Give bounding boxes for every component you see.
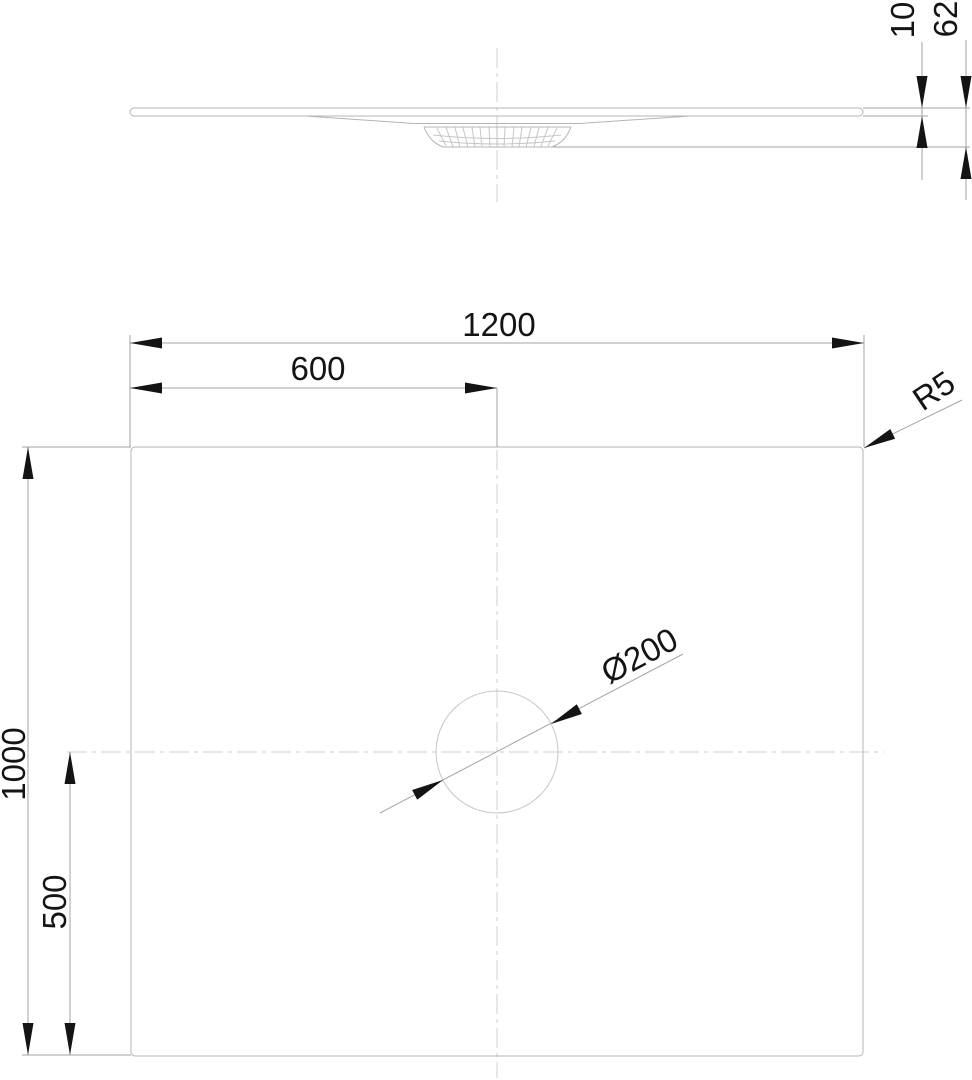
arrowhead	[65, 752, 76, 784]
arrowhead	[832, 338, 864, 349]
dim-width-label: 1200	[462, 306, 535, 343]
corner-radius-label: R5	[906, 363, 962, 417]
arrowhead	[23, 447, 34, 479]
arrowhead	[917, 116, 928, 148]
drain-diameter-callout: Ø200	[380, 620, 684, 813]
tray-slope-right	[580, 116, 690, 124]
corner-radius-callout: R5	[864, 363, 962, 448]
arrowhead	[961, 76, 972, 108]
tray-slope-left	[305, 116, 414, 124]
arrowhead	[23, 1023, 34, 1055]
dim-depth-label: 1000	[0, 727, 32, 800]
plan-view: 1200 600 1000 500	[0, 306, 962, 1078]
arrowhead	[412, 780, 443, 800]
dimension-depth: 1000	[0, 447, 131, 1055]
dim-rim-height-label: 10	[884, 2, 921, 39]
arrowhead	[864, 429, 895, 448]
technical-drawing-canvas: 10 62 1200	[0, 0, 972, 1080]
side-view: 10 62	[130, 1, 972, 202]
dimension-center-x: 600	[130, 350, 497, 447]
arrowhead	[917, 76, 928, 108]
dim-center-y-label: 500	[36, 874, 73, 929]
dimension-center-y: 500	[36, 752, 76, 1055]
dim-total-height-label: 62	[927, 1, 964, 38]
arrowhead	[65, 1023, 76, 1055]
dimension-rim-height: 10	[884, 2, 928, 180]
arrowhead	[961, 147, 972, 179]
dimension-total-height: 62	[927, 1, 972, 200]
arrowhead	[465, 383, 497, 394]
dim-center-x-label: 600	[290, 350, 345, 387]
arrowhead	[130, 338, 162, 349]
arrowhead	[130, 383, 162, 394]
arrowhead	[551, 704, 582, 724]
drain-body	[424, 127, 571, 147]
drain-diameter-label: Ø200	[595, 620, 684, 691]
drain-fan-lines	[433, 128, 561, 148]
